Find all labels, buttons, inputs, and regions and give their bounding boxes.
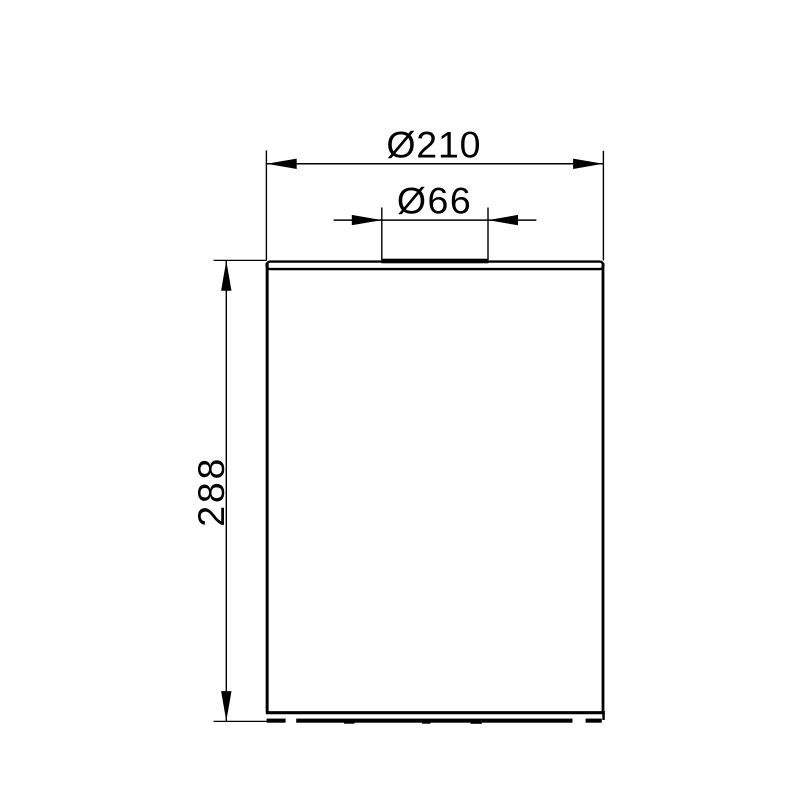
- svg-text:Ø210: Ø210: [386, 124, 481, 166]
- svg-text:288: 288: [190, 456, 232, 527]
- svg-text:Ø66: Ø66: [397, 179, 472, 221]
